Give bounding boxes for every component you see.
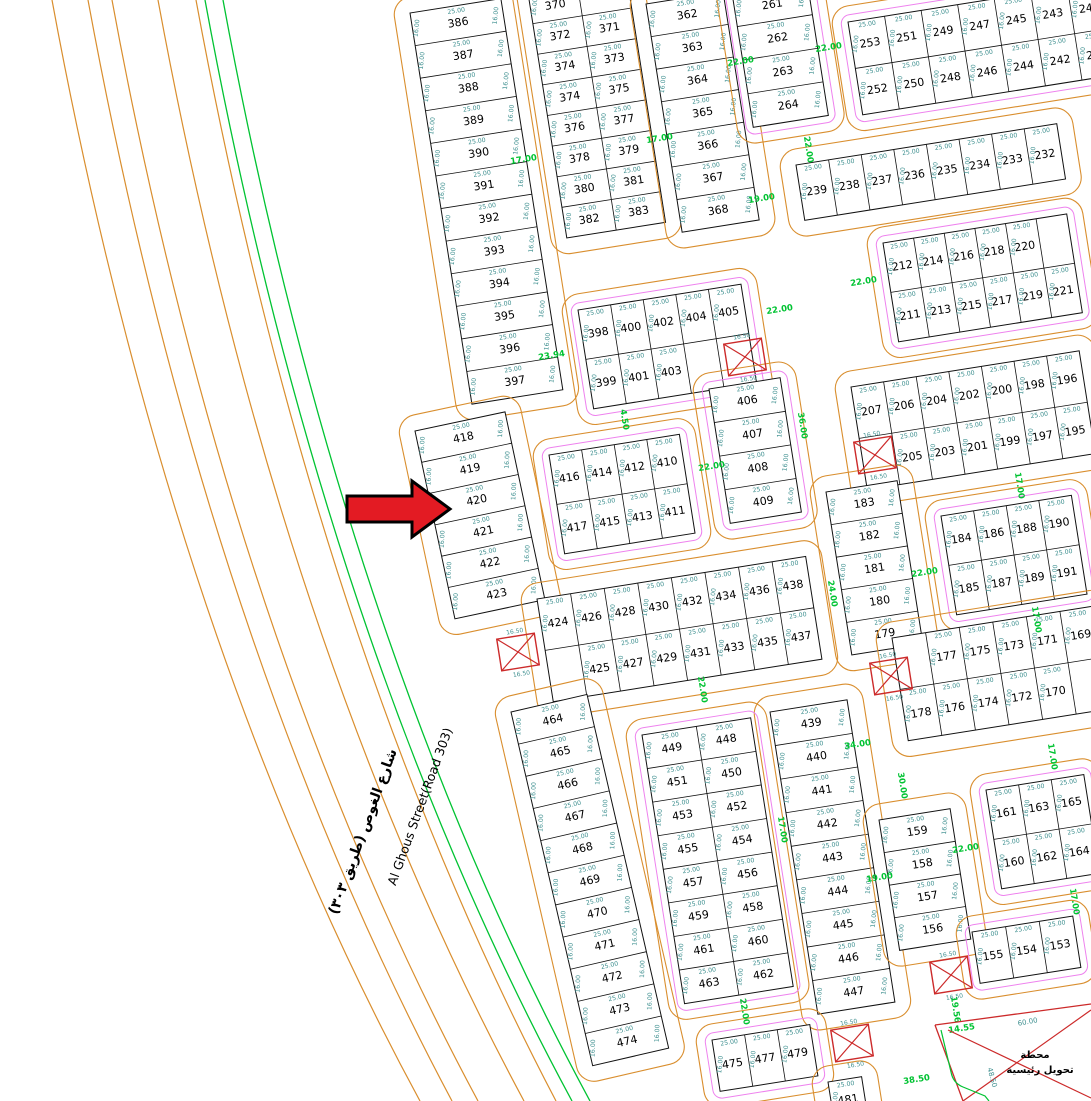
map-canvas: شارع الغوص (طريق ٣٠٣)Al Ghous Street(Roa…: [0, 0, 1091, 1101]
dim-label: 16.00: [560, 911, 568, 929]
road-dimension-label: 22.00: [801, 136, 815, 164]
dim-label: 16.00: [602, 799, 610, 817]
road-dimension-label: 22.00: [698, 460, 726, 474]
dim-label: 16.00: [589, 1039, 597, 1057]
plot-block-blk-249: 25325.0016.0025125.0016.0024925.0016.002…: [830, 0, 1091, 133]
dim-label: 16.00: [517, 514, 525, 532]
dim-label: 16.00: [609, 831, 617, 849]
cadastral-map: شارع الغوص (طريق ٣٠٣)Al Ghous Street(Roa…: [0, 0, 1091, 1101]
road-dimension-label: 17.00: [1045, 743, 1059, 771]
dim-label: 16.00: [580, 703, 588, 721]
plot-block-row-153: 15525.0016.0015425.0016.0015325.0016.00: [954, 898, 1091, 1002]
station-green-edge: [941, 1030, 989, 1101]
dim-label: 16.00: [530, 782, 538, 800]
dim-label: 16.00: [439, 530, 447, 548]
dim-label: 16.00: [594, 767, 602, 785]
road-dimension-label: 22.00: [766, 303, 794, 317]
road-contour-line: [52, 0, 420, 1101]
road-contour-line: [88, 0, 452, 1101]
dim-label: 16.00: [419, 436, 427, 454]
station-diagonal: [948, 1030, 1091, 1098]
dim-label: 16.00: [524, 545, 532, 563]
dim-label: 48.50: [985, 1067, 998, 1088]
svg-text:شارع الغوص (طريق ٣٠٣): شارع الغوص (طريق ٣٠٣): [326, 747, 401, 917]
road-dimension-label: 38.50: [903, 1073, 931, 1087]
road-dimension-label: 14.55: [948, 1022, 976, 1036]
dim-label: 16.50: [512, 669, 530, 679]
utility-plot-xbox: 16.5016.50: [928, 948, 973, 1003]
plot-number: 241: [1078, 0, 1091, 16]
dim-label: 16.00: [632, 928, 640, 946]
dim-label: 16.00: [445, 561, 453, 579]
dim-label: 16.00: [523, 750, 531, 768]
road-contour-line: [112, 0, 478, 1101]
block-outline: [892, 606, 1091, 741]
dim-label: 16.00: [582, 1007, 590, 1025]
road-dimension-label: 22.00: [695, 676, 709, 704]
dim-label: 16.00: [552, 878, 560, 896]
dim-label: 16.00: [575, 975, 583, 993]
dim-label: 16.00: [639, 960, 647, 978]
street-name-arabic: شارع الغوص (طريق ٣٠٣): [326, 747, 401, 917]
utility-plot-xbox: 16.5016.50: [495, 625, 540, 680]
road-dimension-label: 36.00: [795, 412, 809, 440]
dim-label: 16.00: [567, 943, 575, 961]
station-label: محطة: [1020, 1050, 1049, 1061]
plot-block-blk-184: 18425.0016.0018625.0016.0018825.0016.001…: [923, 477, 1091, 633]
dim-label: 16.00: [504, 451, 512, 469]
plot-block-blk-475: 47525.0016.0047725.0016.0047925.0016.00: [694, 1006, 837, 1101]
dim-label: 16.00: [587, 735, 595, 753]
dim-label: 16.00: [515, 718, 523, 736]
dim-label: 16.00: [510, 482, 518, 500]
dim-label: 16.00: [545, 846, 553, 864]
dim-label: 16.00: [497, 420, 505, 438]
plot-block-blk-412: 41625.0016.0041425.0016.0041225.0016.004…: [531, 416, 714, 572]
plot-block-blk-212: 21225.0016.0021425.0016.0021625.0016.002…: [865, 196, 1091, 360]
station-label: تحويل رئيسية: [1006, 1065, 1074, 1076]
dim-label: 16.00: [425, 468, 433, 486]
dim-label: 16.50: [885, 693, 903, 703]
dim-label: 16.00: [530, 576, 538, 594]
road-dimension-label: 22.00: [737, 998, 751, 1026]
dim-label: 16.00: [654, 1024, 662, 1042]
road-dimension-label: 17.00: [1067, 888, 1081, 916]
dim-label: 16.00: [831, 1091, 840, 1101]
dim-label: 16.00: [452, 593, 460, 611]
road-dimension-label: 17.00: [1012, 472, 1026, 500]
dim-label: 16.00: [624, 896, 632, 914]
road-dimension-label: 22.00: [815, 41, 843, 55]
plot-block-blk-161: 16125.0016.0016325.0016.0016525.0016.001…: [968, 756, 1091, 907]
dim-label: 16.50: [846, 1060, 864, 1070]
road-dimension-label: 30.00: [895, 772, 909, 800]
dim-label: 16.00: [646, 992, 654, 1010]
dim-label: 16.00: [538, 814, 546, 832]
dim-label: 16.50: [945, 992, 963, 1002]
dim-label: 16.00: [617, 864, 625, 882]
dim-label: 60.00: [1017, 1016, 1038, 1027]
